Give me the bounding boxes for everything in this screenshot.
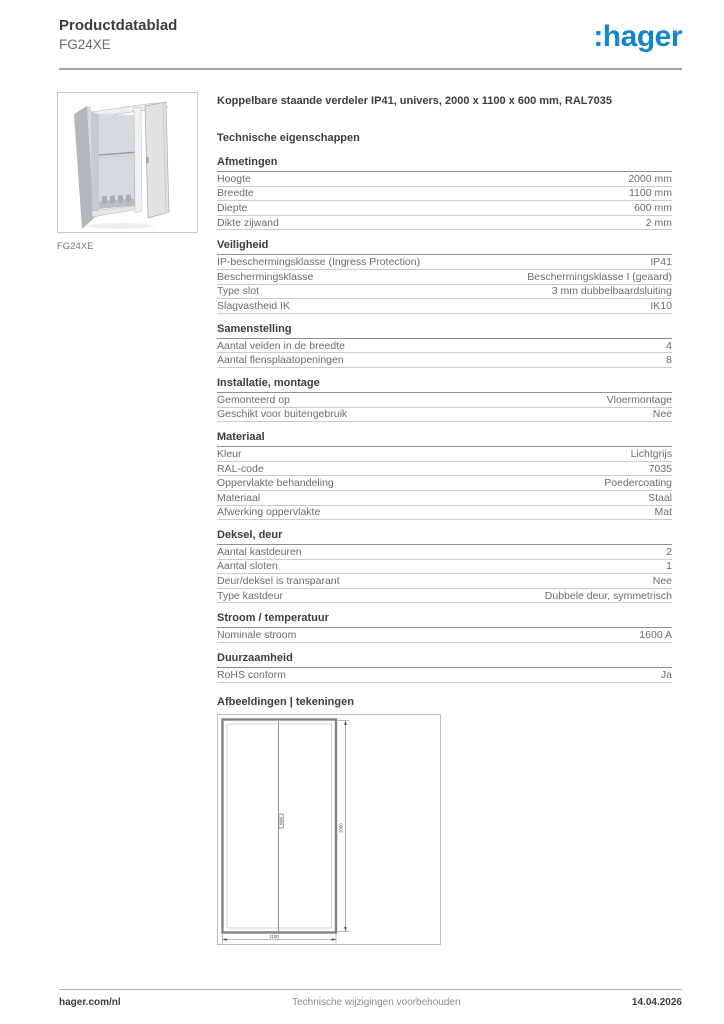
- product-figure: FG24XE: [57, 92, 198, 252]
- spec-label: Aantal velden in de breedte: [217, 340, 345, 352]
- product-code: FG24XE: [59, 36, 177, 53]
- spec-value: 1100 mm: [629, 187, 672, 199]
- product-photo-frame: [57, 92, 198, 233]
- spec-value: Vloermontage: [607, 394, 672, 406]
- spec-label: Deur/deksel is transparant: [217, 575, 340, 587]
- spec-label: Diepte: [217, 202, 247, 214]
- spec-row: Afwerking oppervlakte Mat: [217, 506, 672, 521]
- spec-value: 7035: [649, 463, 672, 475]
- spec-value: Lichtgrijs: [631, 448, 672, 460]
- spec-row: RAL-code 7035: [217, 462, 672, 477]
- spec-row: Beschermingsklasse Beschermingsklasse I …: [217, 270, 672, 285]
- spec-value: 3 mm dubbelbaardsluiting: [552, 285, 672, 297]
- spec-rows: Aantal velden in de breedte 4 Aantal fle…: [217, 339, 672, 368]
- spec-label: Gemonteerd op: [217, 394, 290, 406]
- drawing-width-dim-label: 1100: [269, 933, 279, 938]
- spec-label: Materiaal: [217, 492, 260, 504]
- technical-drawing-frame: 2000 1100: [217, 714, 441, 945]
- spec-rows: Kleur Lichtgrijs RAL-code 7035 Oppervlak…: [217, 447, 672, 520]
- spec-value: Dubbele deur, symmetrisch: [545, 590, 672, 602]
- spec-row: Geschikt voor buitengebruik Nee: [217, 408, 672, 423]
- product-photo-icon: [58, 93, 197, 232]
- drawing-height-dim-label: 2000: [339, 822, 344, 832]
- spec-section-title: Materiaal: [217, 432, 672, 447]
- spec-label: Geschikt voor buitengebruik: [217, 408, 347, 420]
- spec-rows: Aantal kastdeuren 2 Aantal sloten 1 Deur…: [217, 545, 672, 603]
- spec-row: Aantal kastdeuren 2: [217, 545, 672, 560]
- spec-row: Hoogte 2000 mm: [217, 172, 672, 187]
- document-header: Productdatablad FG24XE: [59, 17, 177, 53]
- spec-row: Type slot 3 mm dubbelbaardsluiting: [217, 285, 672, 300]
- product-description-title: Koppelbare staande verdeler IP41, univer…: [217, 95, 672, 108]
- spec-section-title: Deksel, deur: [217, 530, 672, 545]
- spec-rows: Nominale stroom 1600 A: [217, 628, 672, 643]
- spec-row: Slagvastheid IK IK10: [217, 299, 672, 314]
- spec-section-title: Afmetingen: [217, 157, 672, 172]
- spec-label: Dikte zijwand: [217, 217, 279, 229]
- spec-label: Type slot: [217, 285, 259, 297]
- spec-label: RAL-code: [217, 463, 264, 475]
- spec-section: Stroom / temperatuur Nominale stroom 160…: [217, 613, 672, 643]
- spec-row: Kleur Lichtgrijs: [217, 447, 672, 462]
- spec-sections: Afmetingen Hoogte 2000 mm Breedte 1100 m…: [217, 157, 672, 683]
- spec-row: Gemonteerd op Vloermontage: [217, 393, 672, 408]
- spec-value: 600 mm: [634, 202, 672, 214]
- document-title: Productdatablad: [59, 17, 177, 35]
- spec-value: IP41: [650, 256, 672, 268]
- spec-label: RoHS conform: [217, 669, 286, 681]
- spec-value: Beschermingsklasse I (geaard): [527, 271, 672, 283]
- spec-label: Nominale stroom: [217, 629, 296, 641]
- spec-label: Kleur: [217, 448, 242, 460]
- spec-label: Hoogte: [217, 173, 251, 185]
- spec-value: 2: [666, 546, 672, 558]
- spec-row: Dikte zijwand 2 mm: [217, 216, 672, 231]
- hager-logo: :hager: [593, 21, 682, 53]
- spec-section: Installatie, montage Gemonteerd op Vloer…: [217, 378, 672, 422]
- technical-drawing-icon: 2000 1100: [218, 715, 440, 944]
- spec-value: Ja: [661, 669, 672, 681]
- drawings-heading: Afbeeldingen | tekeningen: [217, 696, 672, 709]
- spec-label: Breedte: [217, 187, 254, 199]
- product-photo-caption: FG24XE: [57, 241, 198, 252]
- spec-label: Slagvastheid IK: [217, 300, 290, 312]
- spec-row: Breedte 1100 mm: [217, 187, 672, 202]
- spec-value: 2000 mm: [628, 173, 672, 185]
- spec-label: Afwerking oppervlakte: [217, 506, 320, 518]
- spec-section: Samenstelling Aantal velden in de breedt…: [217, 324, 672, 368]
- footer-notice: Technische wijzigingen voorbehouden: [292, 997, 460, 1008]
- spec-value: IK10: [650, 300, 672, 312]
- spec-section-title: Veiligheid: [217, 240, 672, 255]
- spec-row: Aantal sloten 1: [217, 560, 672, 575]
- spec-rows: Hoogte 2000 mm Breedte 1100 mm Diepte 60…: [217, 172, 672, 230]
- spec-row: Aantal velden in de breedte 4: [217, 339, 672, 354]
- spec-value: 1: [666, 560, 672, 572]
- spec-label: Oppervlakte behandeling: [217, 477, 334, 489]
- spec-label: Beschermingsklasse: [217, 271, 313, 283]
- footer-divider: [59, 989, 682, 990]
- spec-section-title: Duurzaamheid: [217, 653, 672, 668]
- spec-section: Veiligheid IP-beschermingsklasse (Ingres…: [217, 240, 672, 313]
- spec-value: 4: [666, 340, 672, 352]
- datasheet-page: Productdatablad FG24XE :hager: [0, 0, 724, 1024]
- spec-value: 2 mm: [646, 217, 672, 229]
- spec-row: Deur/deksel is transparant Nee: [217, 574, 672, 589]
- spec-value: 1600 A: [639, 629, 672, 641]
- spec-row: IP-beschermingsklasse (Ingress Protectio…: [217, 255, 672, 270]
- spec-value: Nee: [653, 408, 672, 420]
- spec-label: Aantal kastdeuren: [217, 546, 302, 558]
- spec-section: Deksel, deur Aantal kastdeuren 2 Aantal …: [217, 530, 672, 603]
- spec-label: Aantal flensplaatopeningen: [217, 354, 344, 366]
- spec-section-title: Stroom / temperatuur: [217, 613, 672, 628]
- tech-properties-heading: Technische eigenschappen: [217, 132, 672, 145]
- spec-rows: Gemonteerd op Vloermontage Geschikt voor…: [217, 393, 672, 422]
- spec-value: Poedercoating: [604, 477, 672, 489]
- content-column: Koppelbare staande verdeler IP41, univer…: [217, 95, 672, 945]
- spec-label: Type kastdeur: [217, 590, 283, 602]
- spec-section-title: Installatie, montage: [217, 378, 672, 393]
- spec-section: Materiaal Kleur Lichtgrijs RAL-code 7035…: [217, 432, 672, 520]
- spec-label: Aantal sloten: [217, 560, 278, 572]
- spec-row: Materiaal Staal: [217, 491, 672, 506]
- spec-row: Nominale stroom 1600 A: [217, 628, 672, 643]
- spec-rows: IP-beschermingsklasse (Ingress Protectio…: [217, 255, 672, 313]
- spec-row: Diepte 600 mm: [217, 201, 672, 216]
- header-divider: [59, 68, 682, 70]
- spec-rows: RoHS conform Ja: [217, 668, 672, 683]
- document-footer: hager.com/nl Technische wijzigingen voor…: [59, 997, 682, 1008]
- spec-value: 8: [666, 354, 672, 366]
- spec-row: Aantal flensplaatopeningen 8: [217, 353, 672, 368]
- spec-value: Mat: [654, 506, 672, 518]
- spec-row: Type kastdeur Dubbele deur, symmetrisch: [217, 589, 672, 604]
- spec-section: Afmetingen Hoogte 2000 mm Breedte 1100 m…: [217, 157, 672, 230]
- spec-row: RoHS conform Ja: [217, 668, 672, 683]
- spec-value: Nee: [653, 575, 672, 587]
- spec-label: IP-beschermingsklasse (Ingress Protectio…: [217, 256, 420, 268]
- spec-section-title: Samenstelling: [217, 324, 672, 339]
- footer-date: 14.04.2026: [632, 997, 682, 1008]
- spec-value: Staal: [648, 492, 672, 504]
- spec-section: Duurzaamheid RoHS conform Ja: [217, 653, 672, 683]
- footer-website: hager.com/nl: [59, 997, 121, 1008]
- spec-row: Oppervlakte behandeling Poedercoating: [217, 476, 672, 491]
